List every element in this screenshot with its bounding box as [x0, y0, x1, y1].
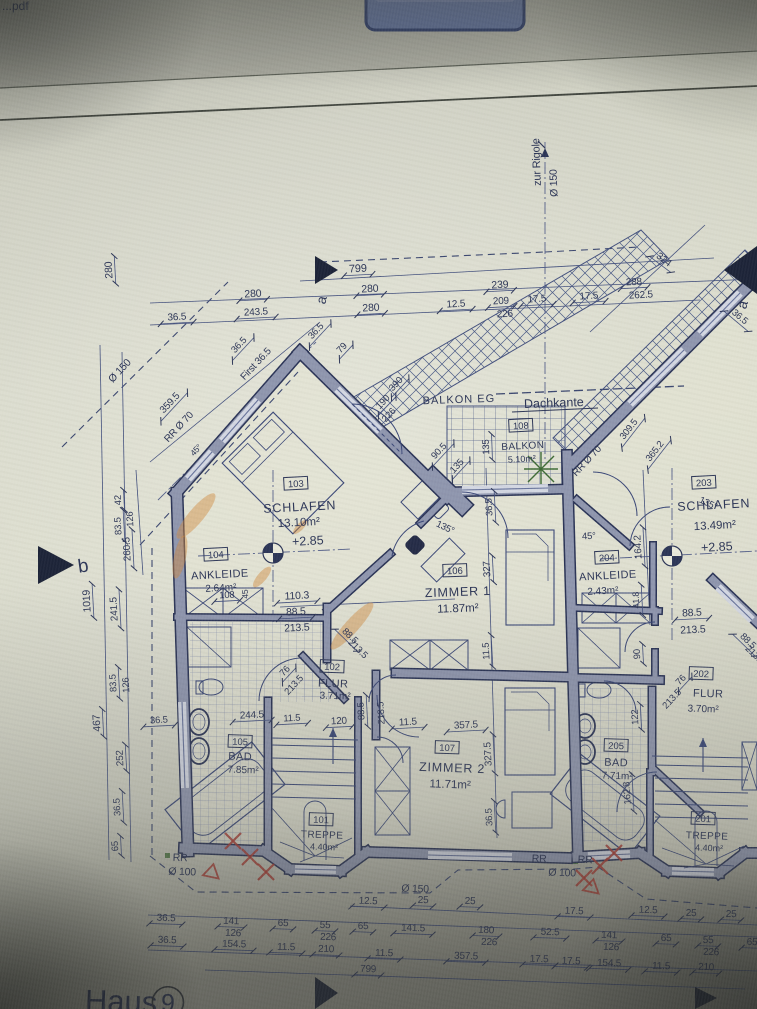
room-area: 5.10m²: [508, 453, 537, 464]
dimension: 280: [102, 253, 119, 287]
dimension-text: 36.5: [150, 715, 168, 727]
dimension-text: 210: [698, 962, 715, 974]
room-number-text: 102: [324, 662, 340, 674]
room-area: 4.40m²: [310, 842, 338, 853]
dimension: 141.5: [390, 922, 435, 938]
room-name: BAD: [604, 757, 628, 770]
room-area-text: 2.43m²: [587, 585, 619, 598]
room-area: 11.71m²: [429, 778, 471, 791]
room-name: ZIMMER 1: [425, 584, 492, 600]
dimension-text: 65: [358, 921, 370, 932]
dimension-text: 1019: [80, 589, 93, 613]
room-area: 11.87m²: [437, 602, 479, 615]
dimension-text: 11.5: [652, 961, 671, 973]
dimension-text: 11.5: [399, 717, 418, 729]
dimension-line: [460, 907, 480, 908]
dimension-text: 36.5: [112, 798, 124, 816]
dimension-text: 17.5: [565, 906, 585, 918]
dimension: 17.5: [554, 905, 593, 920]
dimension: 126: [125, 511, 137, 527]
dimension-text: 17.5: [562, 956, 582, 968]
dimension-text: 280: [361, 283, 379, 296]
dimension-text: 36.5: [167, 311, 187, 323]
dimension: 467: [90, 706, 107, 740]
dimension: Ø 150: [548, 169, 561, 197]
dimension-text: 799: [349, 263, 367, 276]
dimension-line: [681, 919, 701, 920]
dimension: 65: [109, 833, 124, 859]
room-area-text: 13.10m²: [277, 516, 320, 530]
dimension: 36.5: [147, 934, 186, 949]
dimension-text: 209: [493, 296, 510, 308]
dimension-text: 12.5: [446, 298, 466, 310]
dimension: 213.5: [680, 623, 706, 636]
sheet-title: Haus 9: [85, 983, 184, 1009]
room-number-text: 108: [513, 421, 529, 433]
dimension-text: Ø 150: [106, 357, 134, 386]
dimension-chain-line: [122, 352, 131, 862]
wall-fill: [396, 673, 566, 677]
dimension: 213.5: [375, 701, 387, 724]
dimension-text: 65: [278, 918, 290, 929]
room-level-text: +2.85: [701, 539, 733, 555]
dimension-text: 25: [465, 896, 477, 907]
dimension: 226: [481, 937, 498, 949]
dimension-text: 36.5: [158, 935, 178, 947]
section-triangle: [38, 546, 74, 584]
room-area-text: 5.10m²: [508, 453, 537, 464]
dimension-text: 141: [223, 916, 240, 928]
room-name: BAD: [228, 751, 252, 764]
roof-overhang-dashed: [62, 282, 228, 447]
dimension: RR: [173, 852, 189, 865]
room-number-text: 203: [696, 478, 712, 490]
dimension: 154.5: [211, 938, 256, 954]
dimension-text: Ø 150: [401, 883, 429, 896]
dimension-text: 45°: [582, 531, 597, 543]
dimension-text: 141.5: [401, 923, 426, 935]
dimension-text: 135: [481, 439, 493, 455]
level-symbol: [263, 543, 283, 563]
svg-text:b: b: [77, 555, 90, 577]
dimension-text: 55: [320, 920, 332, 931]
section-triangle: [315, 977, 338, 1009]
dimension: 799: [340, 262, 375, 279]
dimension-text: 126: [121, 677, 133, 693]
room-level: +2.85: [292, 533, 324, 549]
screen-photo: 79928028023936.5243.528012.520922617.517…: [0, 0, 757, 1009]
house-number: 9: [161, 989, 176, 1009]
wall-fill: [577, 608, 659, 611]
room-area-text: 11.71m²: [429, 778, 471, 791]
sheet-edge-line: [0, 86, 757, 120]
dimension: 12.5: [628, 904, 667, 919]
dimension: 17.5: [551, 955, 590, 970]
room-name-text: BAD: [228, 751, 252, 764]
room-area-text: 4.40m²: [695, 843, 723, 854]
room-level: +2.85: [701, 539, 733, 555]
dimension-line: [693, 973, 720, 974]
dimension-text: 83.5: [113, 517, 125, 535]
dimension-text: 88.5: [286, 605, 307, 618]
dimension: 25: [678, 908, 705, 923]
dimension: Ø 150: [401, 883, 429, 896]
dimension-text: 79: [335, 341, 350, 356]
dimension: Ø 150: [106, 357, 134, 386]
room-area: 4.40m²: [695, 843, 723, 854]
room-area: 2.43m²: [587, 585, 619, 598]
dimension: 79: [329, 335, 357, 363]
green-mark: [165, 853, 170, 858]
room-area-text: 2.64m²: [205, 582, 237, 595]
room-name-text: BAD: [604, 757, 628, 770]
dimension-text: 280: [362, 302, 380, 315]
room-name-text: TREPPE: [686, 830, 729, 842]
dimension-text: 226: [320, 932, 337, 944]
dimension-text: 162.8: [621, 781, 633, 804]
section-marker-b-label: b: [77, 555, 90, 577]
room-level-text: +2.85: [292, 533, 324, 549]
svg-text:BALKON EG: BALKON EG: [422, 393, 495, 408]
dimension-text: 357.5: [454, 951, 479, 963]
dimension-text: 260.5: [121, 536, 133, 561]
dimension-text: zur Rigole: [530, 138, 544, 186]
dimension-line: [120, 836, 121, 856]
room-number-text: 201: [695, 814, 711, 826]
room-area-text: 13.49m²: [693, 519, 736, 533]
room-area: 7.85m²: [227, 764, 259, 776]
dimension-text: 126: [225, 928, 242, 940]
dimension-text: 88.5: [682, 606, 703, 619]
dimension: 11.5: [364, 947, 403, 962]
dimension-text: 11.5: [277, 942, 296, 954]
room-number-text: 204: [599, 553, 615, 565]
dimension-text: 17.5: [579, 290, 599, 302]
dimension: 226: [497, 309, 514, 321]
room-area-text: 3.71m²: [319, 690, 351, 702]
room-name: BALKON: [501, 440, 545, 453]
room-name-text: FLUR: [693, 687, 724, 700]
dimension-chain-line: [150, 300, 700, 325]
dimension-text: 252: [115, 749, 127, 766]
dimension-text: 799: [360, 964, 377, 976]
dimension-text: 154.5: [222, 939, 247, 951]
room-name-text: FLUR: [318, 677, 349, 690]
dimension: 17.5: [519, 953, 558, 968]
dimension-text: 11.5: [283, 713, 301, 725]
dimension-text: 36.5: [157, 913, 177, 925]
dimension: 25: [410, 895, 437, 910]
dimension: 1019: [80, 581, 97, 622]
dimension-line: [656, 944, 676, 945]
dimension-text: 17.5: [530, 954, 550, 966]
room-name: ZIMMER 2: [419, 760, 486, 776]
room-area-text: 7.71m²: [601, 770, 633, 782]
dimension: 36.5: [299, 314, 335, 351]
room-number-text: 205: [608, 741, 624, 753]
dimension-text: 226: [497, 309, 514, 321]
floorplan-drawing: 79928028023936.5243.528012.520922617.517…: [0, 0, 757, 1009]
dimension: RR: [578, 854, 594, 867]
dimension-text: 280: [244, 288, 262, 301]
dimension-text: 120: [331, 716, 348, 728]
dimension: zur Rigole: [530, 138, 544, 186]
dimension-line: [721, 920, 741, 921]
dimension: 25: [718, 909, 745, 924]
dimension: 45°: [582, 531, 597, 543]
dimension-text: 467: [91, 714, 104, 732]
room-area-text: 7.85m²: [227, 764, 259, 776]
dimension-text: 288: [626, 277, 643, 289]
dimension-text: 55: [703, 935, 715, 946]
dimension: 36.5: [146, 912, 185, 927]
dimension-line: [413, 906, 433, 907]
dimension-text: 88.5: [356, 702, 368, 720]
room-name: FLUR: [693, 687, 724, 700]
roof-overhang-dashed: [320, 252, 545, 262]
dimension-text: 122: [630, 709, 642, 725]
dimension-text: 25: [686, 908, 698, 919]
dimension-text: 213.5: [284, 621, 310, 634]
dimension: 36.5: [111, 788, 127, 826]
dimension-text: 11.5: [481, 642, 493, 660]
dimension-tick: [667, 268, 675, 276]
room-number-text: 106: [447, 566, 463, 578]
room-name-text: ZIMMER 1: [425, 584, 492, 600]
dimension: 357.5: [443, 950, 488, 966]
dimension: 126: [603, 942, 620, 954]
dimension: 126: [121, 677, 133, 693]
dimension-line: [273, 929, 293, 930]
dimension-text: 239: [491, 279, 509, 292]
dimension: 36.5: [140, 714, 178, 730]
dimension-text: RR: [578, 854, 594, 867]
dimension-text: 180: [478, 925, 495, 937]
dimension-text: RR: [173, 852, 189, 865]
room-area: 13.10m²: [277, 516, 320, 530]
dimension-text: 65: [110, 841, 122, 852]
filename-fragment: ...pdf: [2, 0, 29, 13]
dimension-text: 213.5: [375, 701, 387, 724]
dimension-text: 36.5: [484, 498, 496, 516]
dimension-text: 210: [318, 944, 335, 956]
dimension: 252: [114, 741, 130, 774]
dimension-text: 226: [703, 947, 720, 959]
dimension: 280: [236, 287, 270, 304]
dimension-text: 126: [603, 942, 620, 954]
dimension: 126: [225, 928, 242, 940]
dimension-text: 262.5: [629, 289, 654, 301]
dimension-text: 280: [103, 261, 116, 279]
dimension: 42: [112, 487, 127, 513]
dimension-text: 357.5: [454, 719, 479, 731]
dimension-text: 241.5: [108, 596, 120, 621]
dimension-text: 164.2: [632, 534, 644, 559]
dimension-chain-line: [100, 345, 109, 860]
room-number-text: 104: [208, 550, 224, 562]
room-area-text: 4.40m²: [310, 842, 338, 853]
house-label: Haus: [85, 983, 158, 1009]
dimension-line: [353, 932, 373, 933]
dimension: 262.5: [629, 289, 654, 301]
dimension-text: 226: [481, 937, 498, 949]
dimension-chain-line: [205, 970, 745, 989]
room-area: 7.71m²: [601, 770, 633, 782]
dimension: Ø 100: [548, 867, 576, 880]
dimension: RR: [532, 853, 548, 866]
dimension-text: 126: [125, 511, 137, 527]
dimension-text: 83.5: [108, 674, 120, 692]
dimension-text: 12.5: [359, 896, 379, 908]
room-area: 13.49m²: [693, 519, 736, 533]
room-area: 3.71m²: [319, 690, 351, 702]
dimension-text: 65: [747, 937, 757, 948]
dimension: 280: [353, 282, 387, 299]
room-number-text: 202: [693, 669, 709, 681]
dimension-text: 25: [726, 909, 738, 920]
dimension: Ø 100: [168, 866, 196, 879]
dimension-text: Ø 100: [168, 866, 196, 879]
dimension: 226: [703, 947, 720, 959]
dimension: 226: [320, 932, 337, 944]
dimension: 241.5: [108, 586, 124, 632]
level-symbol: [662, 546, 682, 566]
dimension-text: 12.5: [639, 905, 659, 917]
dimension: 25: [457, 896, 484, 911]
dimension-text: 42: [113, 495, 125, 506]
room-area-text: 11.87m²: [437, 602, 479, 615]
dimension-text: 359.5: [158, 390, 183, 416]
room-name: TREPPE: [686, 830, 729, 842]
dimension-text: 11.5: [375, 948, 394, 960]
dimension-text: 65: [661, 933, 673, 944]
dimension: 239: [483, 278, 517, 295]
room-area: 3.70m²: [687, 703, 719, 715]
ui-fragment[interactable]: [366, 0, 524, 30]
room-number-text: 107: [439, 743, 455, 755]
dimension: 12.5: [348, 895, 387, 910]
room-area-text: 3.70m²: [687, 703, 719, 715]
dimension-text: 327: [482, 560, 494, 577]
dimension-text: 213.5: [680, 623, 706, 636]
room-number-text: 105: [232, 737, 248, 749]
dimension-text: Ø 100: [548, 867, 576, 880]
dimension-line: [742, 948, 757, 949]
room-name-text: ZIMMER 2: [419, 760, 486, 776]
dimension-chain-line: [136, 470, 143, 575]
dimension: 45: [240, 589, 250, 599]
balkon-eg-label: BALKON EG: [422, 393, 495, 408]
room-number-text: 101: [313, 815, 329, 827]
dimension-line: [313, 955, 340, 956]
room-name: TREPPE: [301, 829, 344, 841]
dimension-text: 243.5: [244, 306, 269, 318]
dimension-text: 52.5: [541, 927, 561, 939]
dimension-text: 25: [418, 895, 430, 906]
dimension-text: 36.5: [484, 808, 496, 826]
room-name: FLUR: [318, 677, 349, 690]
section-triangle: [695, 987, 717, 1009]
dimension: 799: [352, 963, 385, 978]
dimension-text: 110.3: [284, 589, 309, 602]
dimension-text: Ø 150: [548, 169, 561, 197]
dimension-text: 41.8: [631, 591, 642, 608]
dimension: 65: [653, 933, 680, 948]
wall-fill: [184, 848, 264, 851]
wall-fill: [577, 678, 660, 680]
dimension-text: 45: [240, 589, 250, 599]
room-area: 2.64m²: [205, 582, 237, 595]
dimension: 65: [739, 937, 757, 952]
room-name-text: BALKON: [501, 440, 545, 453]
dimension-text: RR: [532, 853, 548, 866]
red-triangle-mark: [203, 862, 221, 878]
room-name-text: TREPPE: [301, 829, 344, 841]
dimension-text: 17.5: [527, 293, 547, 305]
ui-fragment-highlight: [374, 0, 516, 2]
dimension-text: 141: [601, 930, 618, 942]
dimension: 213.5: [284, 621, 310, 634]
dimension-text: 154.5: [597, 958, 622, 970]
dimension-text: 90: [632, 649, 644, 660]
dimension-text: 244.5: [240, 709, 265, 721]
room-number-text: 103: [288, 479, 304, 491]
